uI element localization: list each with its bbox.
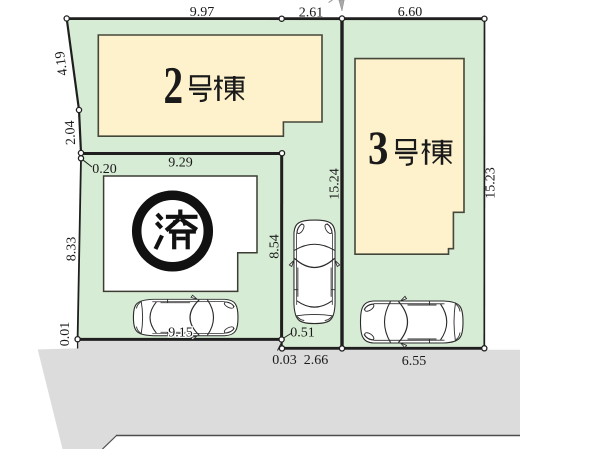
svg-text:15.24: 15.24	[327, 168, 342, 200]
svg-text:0.03: 0.03	[272, 353, 297, 368]
svg-text:6.55: 6.55	[402, 354, 427, 369]
svg-text:2.61: 2.61	[299, 6, 324, 21]
svg-text:6.60: 6.60	[398, 5, 423, 20]
svg-text:4.19: 4.19	[53, 50, 71, 76]
svg-text:8.33: 8.33	[65, 237, 80, 262]
svg-text:0.01: 0.01	[58, 322, 73, 347]
svg-text:0.20: 0.20	[92, 162, 117, 177]
svg-text:0.51: 0.51	[290, 326, 315, 341]
svg-text:2.66: 2.66	[304, 353, 329, 368]
svg-text:8.54: 8.54	[267, 234, 282, 259]
svg-text:2.04: 2.04	[63, 120, 79, 145]
svg-text:9.29: 9.29	[168, 156, 193, 171]
svg-text:9.97: 9.97	[190, 5, 215, 20]
svg-text:3: 3	[368, 121, 388, 175]
svg-text:2: 2	[164, 56, 184, 115]
svg-text:15.23: 15.23	[484, 167, 499, 199]
svg-text:9.15: 9.15	[168, 326, 193, 341]
